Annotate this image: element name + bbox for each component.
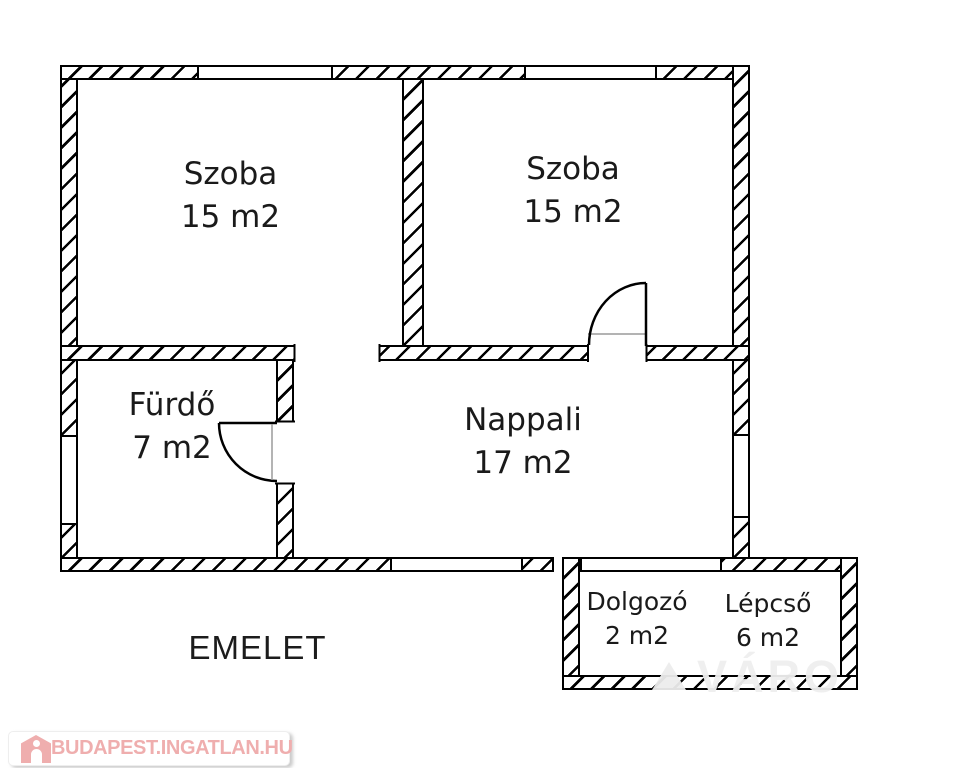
room-label-szoba-top-left: Szoba 15 m2	[103, 153, 358, 239]
opening-szoba-left-doorway	[294, 343, 380, 363]
window-living-bottom	[390, 557, 523, 572]
window-top-right-room	[524, 65, 657, 80]
opening-szoba-right-doorway	[588, 343, 647, 363]
room-label-furdo: Fürdő 7 m2	[82, 384, 262, 470]
window-bathroom-left	[60, 435, 78, 525]
room-label-lepcso: Lépcső 6 m2	[708, 587, 828, 655]
room-name: Nappali	[393, 399, 653, 442]
floor-title: EMELET	[140, 629, 375, 667]
house-window-dot	[33, 740, 40, 747]
room-area: 15 m2	[443, 191, 703, 234]
site-logo-badge: BUDAPEST.INGATLAN.HU	[8, 731, 290, 766]
room-name: Dolgozó	[577, 585, 697, 619]
house-door-shape	[31, 749, 42, 763]
window-top-left-room	[197, 65, 333, 80]
room-name: Szoba	[443, 148, 703, 191]
door-threshold-szoba-right	[588, 333, 647, 345]
floor-plan-image: Szoba 15 m2 Szoba 15 m2 Fürdő 7 m2 Nappa…	[0, 0, 955, 768]
room-name: Fürdő	[82, 384, 262, 427]
room-name: Lépcső	[708, 587, 828, 621]
corner-watermark-text: VÁRO	[697, 651, 843, 703]
room-label-dolgozo: Dolgozó 2 m2	[577, 585, 697, 653]
room-area: 2 m2	[577, 619, 697, 653]
room-name: Szoba	[103, 153, 358, 196]
window-annex-top	[580, 557, 722, 572]
house-icon	[21, 735, 51, 763]
room-label-szoba-top-right: Szoba 15 m2	[443, 148, 703, 234]
watermark-triangle-icon	[652, 662, 686, 690]
wall-divider-bedrooms	[402, 78, 424, 347]
room-label-nappali: Nappali 17 m2	[393, 399, 653, 485]
opening-bathroom-doorway	[274, 421, 296, 484]
room-area: 7 m2	[82, 427, 262, 470]
window-living-right	[732, 434, 750, 518]
room-area: 15 m2	[103, 196, 358, 239]
room-area: 17 m2	[393, 442, 653, 485]
room-area: 6 m2	[708, 621, 828, 655]
site-logo-text: BUDAPEST.INGATLAN.HU	[51, 732, 293, 765]
